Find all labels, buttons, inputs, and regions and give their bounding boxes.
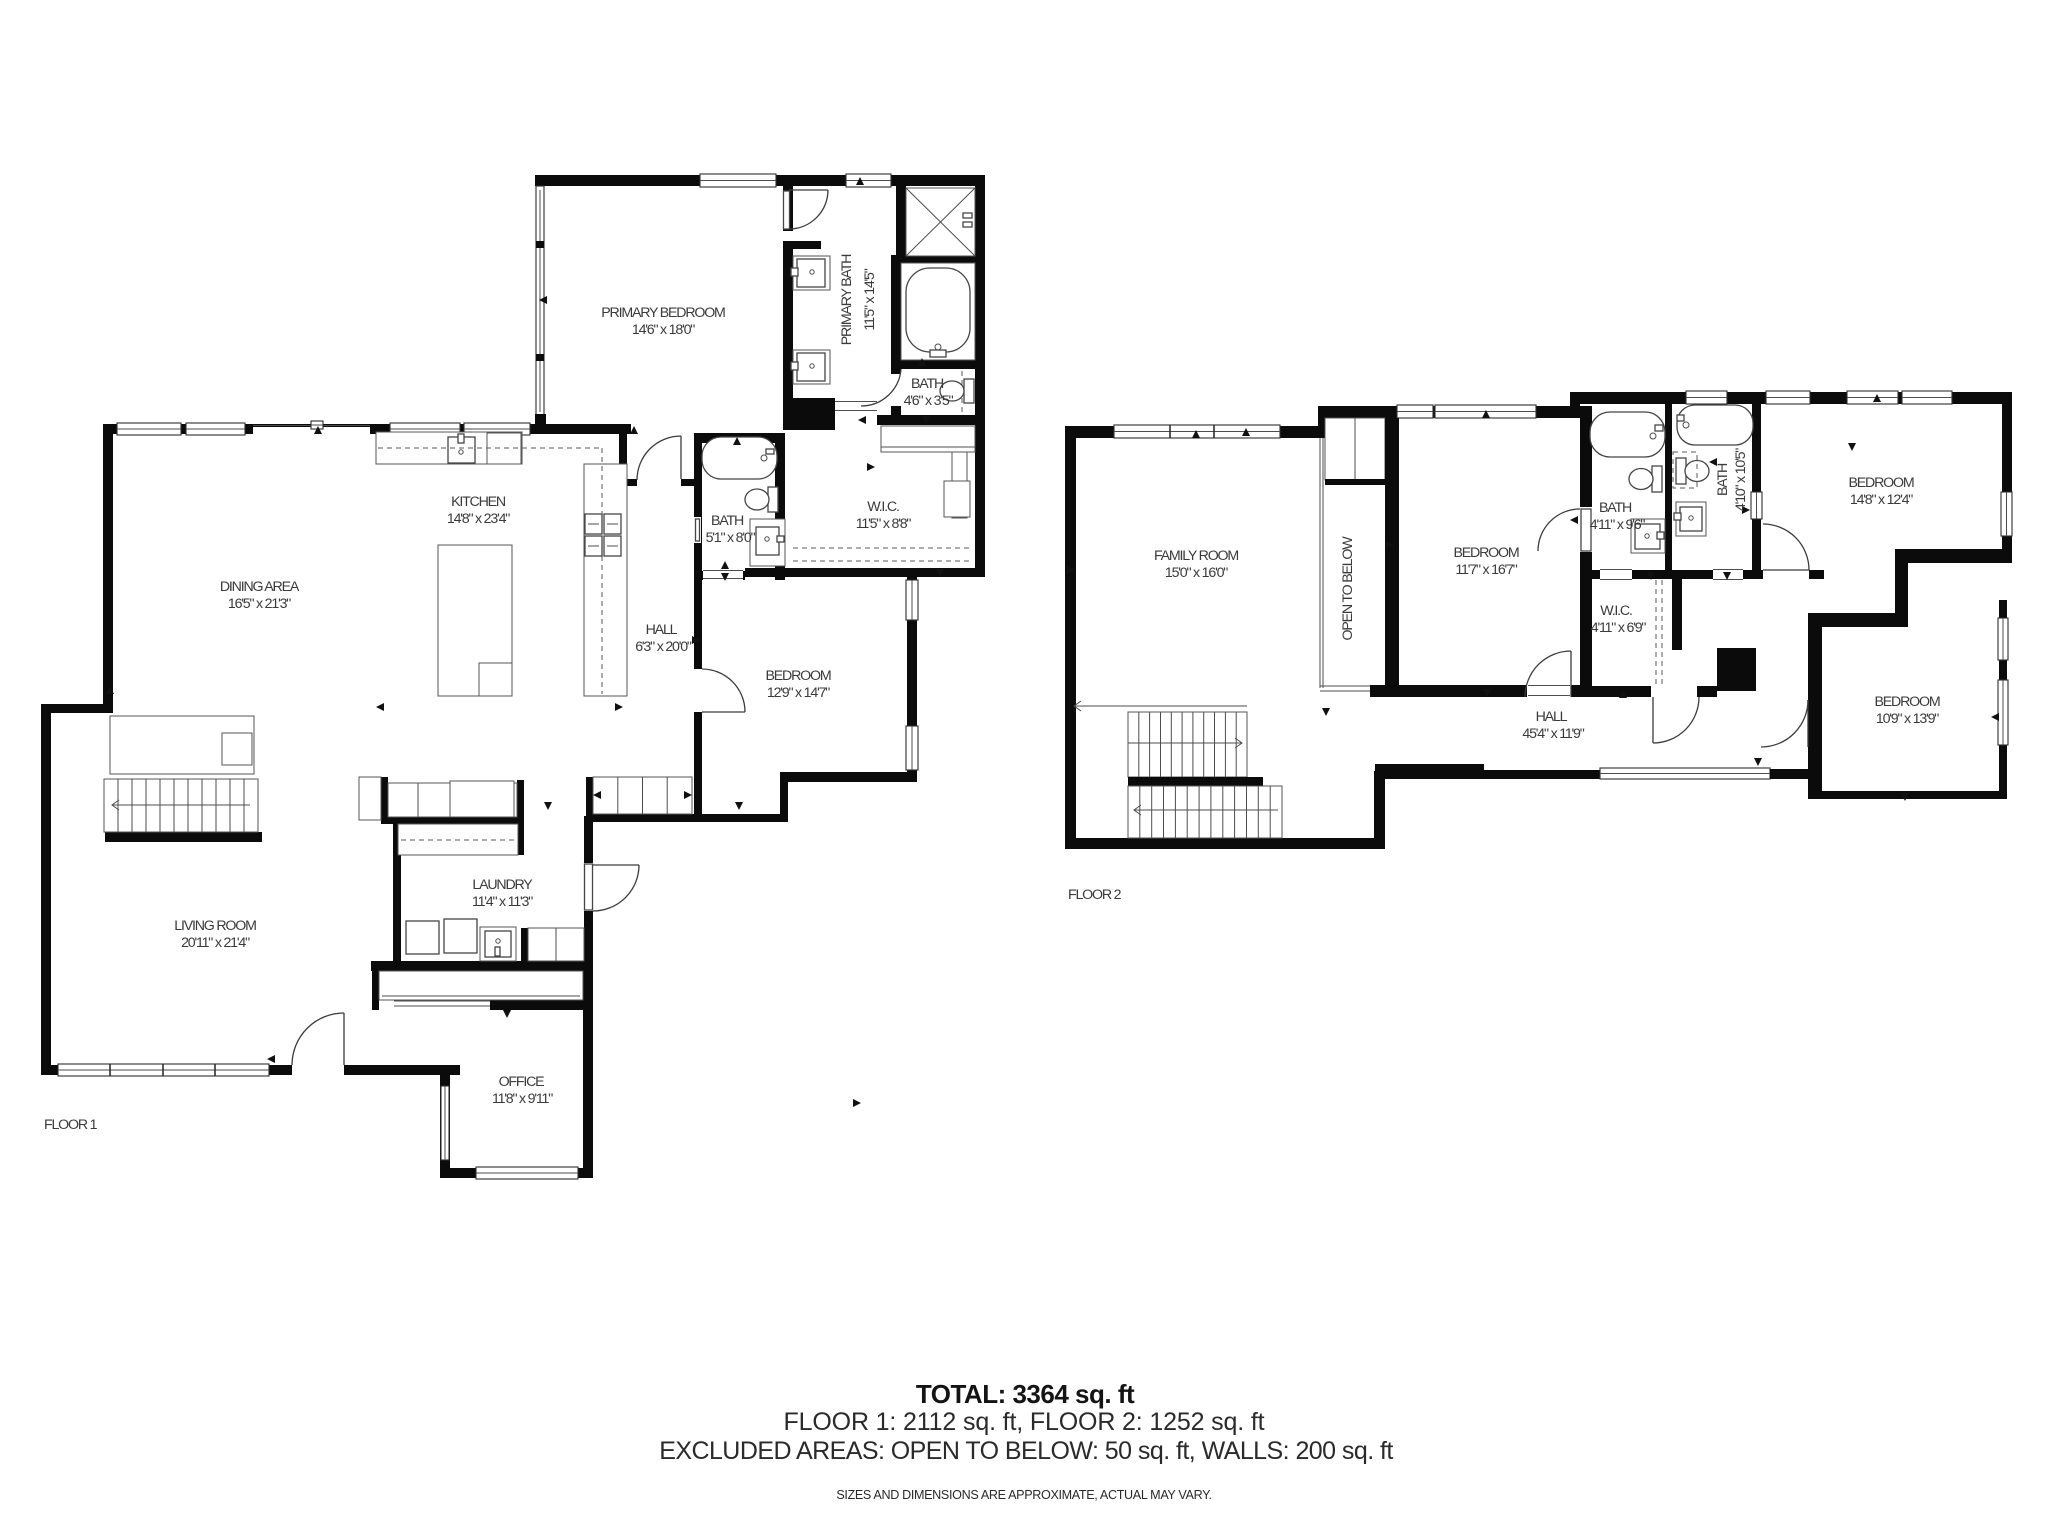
svg-text:11'5" x 14'5": 11'5" x 14'5"	[862, 268, 878, 330]
svg-text:11'5" x 8'8": 11'5" x 8'8"	[856, 516, 912, 532]
svg-text:BATH: BATH	[1715, 463, 1731, 496]
svg-text:KITCHEN: KITCHEN	[451, 494, 506, 510]
svg-text:BEDROOM: BEDROOM	[766, 668, 831, 684]
svg-text:BEDROOM: BEDROOM	[1875, 694, 1940, 710]
svg-text:11'4" x 11'3": 11'4" x 11'3"	[472, 894, 533, 910]
svg-text:BATH: BATH	[1599, 500, 1632, 516]
svg-text:EXCLUDED AREAS: OPEN TO BELOW:: EXCLUDED AREAS: OPEN TO BELOW: 50 sq. ft…	[659, 1437, 1393, 1465]
svg-text:15'0" x 16'0": 15'0" x 16'0"	[1165, 565, 1228, 581]
svg-text:14'8" x 23'4": 14'8" x 23'4"	[447, 511, 510, 527]
svg-text:FLOOR 1: FLOOR 1	[44, 1117, 98, 1133]
svg-text:5'1" x 8'0": 5'1" x 8'0"	[706, 530, 756, 546]
svg-text:W.I.C.: W.I.C.	[1600, 603, 1632, 619]
svg-text:OPEN TO BELOW: OPEN TO BELOW	[1340, 536, 1356, 641]
svg-text:OFFICE: OFFICE	[499, 1074, 545, 1090]
svg-text:6'3" x 20'0": 6'3" x 20'0"	[635, 639, 692, 655]
svg-text:45'4" x 11'9": 45'4" x 11'9"	[1522, 726, 1584, 742]
svg-text:PRIMARY BEDROOM: PRIMARY BEDROOM	[601, 305, 725, 321]
svg-text:11'8" x 9'11": 11'8" x 9'11"	[492, 1091, 553, 1107]
svg-text:4'11" x 6'9": 4'11" x 6'9"	[1591, 620, 1647, 636]
svg-text:4'6" x 3'5": 4'6" x 3'5"	[904, 393, 954, 409]
svg-text:W.I.C.: W.I.C.	[867, 499, 899, 515]
svg-text:HALL: HALL	[1536, 709, 1568, 725]
svg-text:DINING AREA: DINING AREA	[220, 579, 300, 595]
svg-text:4'10" x 10'5": 4'10" x 10'5"	[1733, 448, 1749, 511]
svg-text:BEDROOM: BEDROOM	[1849, 475, 1914, 491]
svg-text:LAUNDRY: LAUNDRY	[472, 877, 533, 893]
svg-text:HALL: HALL	[646, 622, 678, 638]
svg-text:FAMILY ROOM: FAMILY ROOM	[1154, 548, 1238, 564]
svg-text:11'7" x 16'7": 11'7" x 16'7"	[1455, 562, 1517, 578]
svg-text:FLOOR 2: FLOOR 2	[1068, 887, 1122, 903]
svg-text:LIVING ROOM: LIVING ROOM	[174, 918, 256, 934]
svg-text:12'9" x 14'7": 12'9" x 14'7"	[767, 685, 830, 701]
svg-text:BATH: BATH	[911, 376, 944, 392]
svg-text:TOTAL: 3364 sq. ft: TOTAL: 3364 sq. ft	[916, 1379, 1135, 1409]
svg-text:BEDROOM: BEDROOM	[1454, 545, 1519, 561]
svg-text:4'11" x 9'6": 4'11" x 9'6"	[1590, 517, 1646, 533]
svg-text:FLOOR 1: 2112 sq. ft, FLOOR 2:: FLOOR 1: 2112 sq. ft, FLOOR 2: 1252 sq. …	[784, 1408, 1265, 1436]
svg-text:SIZES AND DIMENSIONS ARE APPRO: SIZES AND DIMENSIONS ARE APPROXIMATE, AC…	[836, 1488, 1211, 1502]
svg-text:BATH: BATH	[711, 513, 744, 529]
svg-text:PRIMARY BATH: PRIMARY BATH	[839, 254, 855, 345]
svg-text:16'5" x 21'3": 16'5" x 21'3"	[228, 596, 291, 612]
svg-text:14'6" x 18'0": 14'6" x 18'0"	[632, 322, 695, 338]
svg-text:14'8" x 12'4": 14'8" x 12'4"	[1850, 492, 1913, 508]
svg-text:20'11" x 21'4": 20'11" x 21'4"	[181, 935, 250, 951]
svg-text:10'9" x 13'9": 10'9" x 13'9"	[1876, 711, 1939, 727]
